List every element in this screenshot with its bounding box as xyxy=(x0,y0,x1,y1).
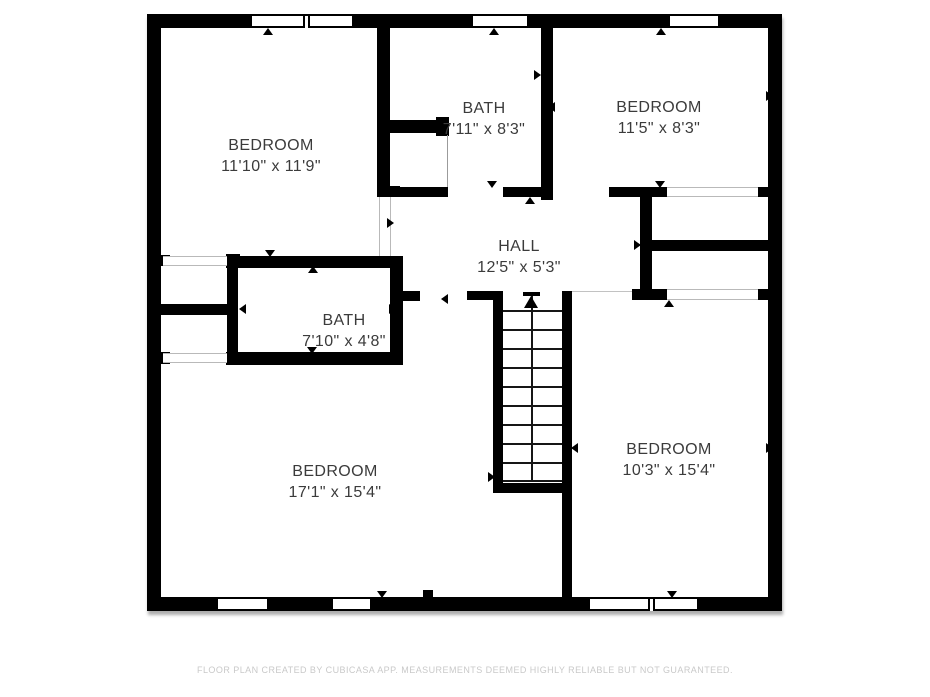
door-marker-icon-11 xyxy=(655,181,665,188)
bedroom-bottom-right-name: BEDROOM xyxy=(623,439,716,460)
window-top-1-mullion xyxy=(303,16,310,28)
window-bottom-3-mullion xyxy=(648,599,655,611)
closet-right-stub-wall xyxy=(632,289,667,300)
closet-right-top-opening xyxy=(667,187,758,197)
floor-plan: BEDROOM11'10" x 11'9"BATH7'11" x 8'3"BED… xyxy=(0,0,930,697)
bedroom-br-doorway-line xyxy=(572,291,632,292)
room-label-bedroom-top-left: BEDROOM11'10" x 11'9" xyxy=(221,135,321,177)
bedroom-top-left-name: BEDROOM xyxy=(221,135,321,156)
window-bottom-3-glass-line xyxy=(590,598,697,599)
closet-left-top-opening xyxy=(163,256,227,266)
bath-middle-dimensions: 7'10" x 4'8" xyxy=(302,331,386,352)
bath-top-right-wall xyxy=(541,28,553,200)
window-top-1 xyxy=(247,14,357,28)
door-marker-icon-3 xyxy=(656,28,666,35)
hall-name: HALL xyxy=(477,236,561,257)
bath-mid-bottom-wall xyxy=(226,352,398,365)
stair-tread-10 xyxy=(503,480,562,482)
door-marker-icon-19 xyxy=(441,294,448,304)
stair-left-wall xyxy=(493,291,503,493)
bath-top-bottom-wall-b xyxy=(503,187,541,197)
door-marker-icon-5 xyxy=(387,218,394,228)
bedroom-top-left-dimensions: 11'10" x 11'9" xyxy=(221,156,321,177)
door-marker-icon-7 xyxy=(548,102,555,112)
exterior-right-wall xyxy=(768,14,782,611)
window-top-2-glass-line xyxy=(473,15,527,16)
right-wall-notch-bottom xyxy=(758,289,768,300)
bath-top-left-wall xyxy=(377,28,390,197)
bath-top-nook-line xyxy=(447,135,448,187)
door-marker-icon-10 xyxy=(766,91,773,101)
door-marker-icon-24 xyxy=(377,591,387,598)
bedroom-top-right-dimensions: 11'5" x 8'3" xyxy=(616,118,701,139)
bath-top-left-wall-cap xyxy=(377,186,400,197)
window-bottom-1 xyxy=(213,597,272,611)
door-marker-icon-23 xyxy=(153,473,160,483)
door-marker-icon-14 xyxy=(265,250,275,257)
hall-stub-wall xyxy=(398,291,420,301)
door-marker-icon-12 xyxy=(634,240,641,250)
window-bottom-2-glass-line xyxy=(333,598,370,599)
bedroom-top-right-name: BEDROOM xyxy=(616,97,701,118)
bath-top-name: BATH xyxy=(443,98,525,119)
door-marker-icon-6 xyxy=(534,70,541,80)
door-marker-icon-9 xyxy=(525,197,535,204)
bath-middle-name: BATH xyxy=(302,310,386,331)
bottom-wall-stub xyxy=(423,590,433,598)
hall-dimensions: 12'5" x 5'3" xyxy=(477,257,561,278)
door-marker-icon-1 xyxy=(263,28,273,35)
window-bottom-3 xyxy=(585,597,702,611)
closet-left-mid-wall xyxy=(157,304,238,315)
door-marker-icon-15 xyxy=(308,266,318,273)
bedroom-bottom-left-dimensions: 17'1" x 15'4" xyxy=(289,482,382,503)
stairwell-bottom-wall xyxy=(493,483,572,493)
door-marker-icon-17 xyxy=(389,304,396,314)
door-marker-icon-13 xyxy=(664,300,674,307)
door-marker-icon-22 xyxy=(766,443,773,453)
bedroom-bottom-left-name: BEDROOM xyxy=(289,461,382,482)
room-label-hall: HALL12'5" x 5'3" xyxy=(477,236,561,278)
stair-up-arrow-icon xyxy=(524,296,538,308)
closet-left-bottom-opening xyxy=(163,353,227,363)
door-marker-icon-2 xyxy=(489,28,499,35)
door-marker-icon-21 xyxy=(571,443,578,453)
bath-top-dimensions: 7'11" x 8'3" xyxy=(443,119,525,140)
window-top-1-glass-line xyxy=(252,15,352,16)
window-top-3 xyxy=(665,14,723,28)
door-marker-icon-20 xyxy=(488,472,495,482)
window-bottom-1-glass-line xyxy=(218,598,267,599)
room-label-bedroom-bottom-left: BEDROOM17'1" x 15'4" xyxy=(289,461,382,503)
bath-top-bottom-wall-a xyxy=(400,187,448,197)
closet-right-mid-wall xyxy=(652,240,768,251)
window-top-3-glass-line xyxy=(670,15,718,16)
bedroom-tr-bottom-wall xyxy=(609,187,667,197)
door-marker-icon-4 xyxy=(154,211,161,221)
bedroom-bottom-right-dimensions: 10'3" x 15'4" xyxy=(623,460,716,481)
door-marker-icon-16 xyxy=(239,304,246,314)
room-label-bedroom-bottom-right: BEDROOM10'3" x 15'4" xyxy=(623,439,716,481)
door-marker-icon-25 xyxy=(667,591,677,598)
closet-right-bottom-opening xyxy=(667,289,758,300)
window-top-2 xyxy=(468,14,532,28)
closet-right-vert-wall xyxy=(640,187,652,299)
window-bottom-2 xyxy=(328,597,375,611)
footer-disclaimer: FLOOR PLAN CREATED BY CUBICASA APP. MEAS… xyxy=(0,665,930,675)
door-marker-icon-8 xyxy=(487,181,497,188)
room-label-bath-middle: BATH7'10" x 4'8" xyxy=(302,310,386,352)
right-wall-notch-top xyxy=(758,187,768,197)
room-label-bedroom-top-right: BEDROOM11'5" x 8'3" xyxy=(616,97,701,139)
room-label-bath-top: BATH7'11" x 8'3" xyxy=(443,98,525,140)
stair-direction-line xyxy=(531,296,533,480)
